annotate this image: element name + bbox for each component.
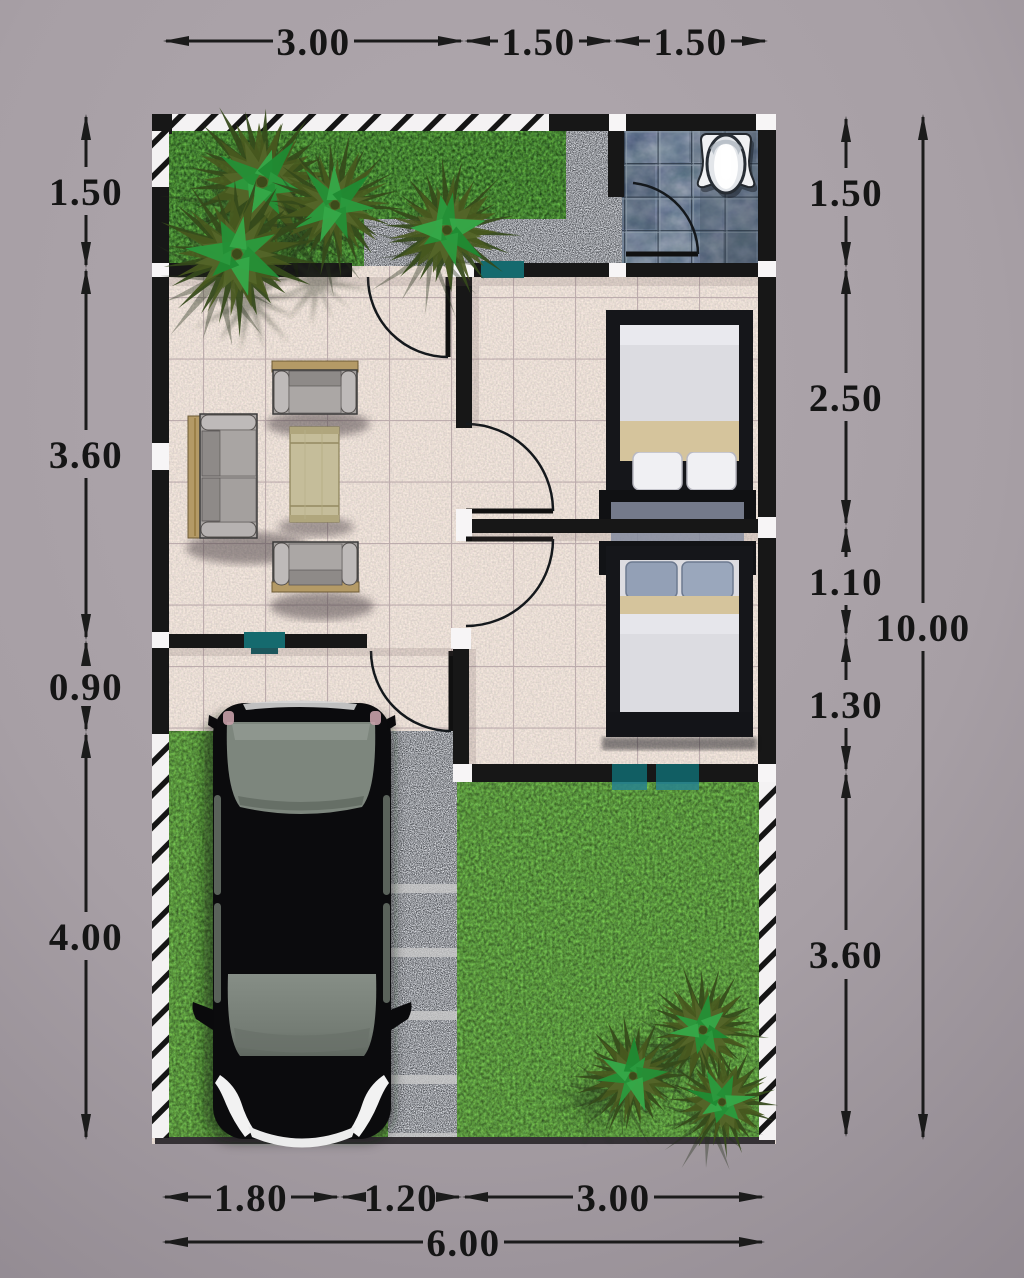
svg-text:4.00: 4.00 xyxy=(49,916,123,959)
svg-text:0.90: 0.90 xyxy=(49,666,123,709)
svg-text:10.00: 10.00 xyxy=(875,607,970,650)
svg-text:3.60: 3.60 xyxy=(809,934,883,977)
svg-text:3.00: 3.00 xyxy=(576,1177,650,1220)
svg-text:1.50: 1.50 xyxy=(501,21,575,64)
svg-text:1.50: 1.50 xyxy=(653,21,727,64)
svg-text:1.50: 1.50 xyxy=(809,172,883,215)
svg-text:3.60: 3.60 xyxy=(49,434,123,477)
svg-text:6.00: 6.00 xyxy=(426,1222,500,1265)
svg-text:1.50: 1.50 xyxy=(49,171,123,214)
svg-text:2.50: 2.50 xyxy=(809,377,883,420)
svg-text:3.00: 3.00 xyxy=(276,21,350,64)
svg-text:1.80: 1.80 xyxy=(214,1177,288,1220)
svg-text:1.30: 1.30 xyxy=(809,684,883,727)
svg-text:1.10: 1.10 xyxy=(809,561,883,604)
svg-text:1.20: 1.20 xyxy=(364,1177,438,1220)
